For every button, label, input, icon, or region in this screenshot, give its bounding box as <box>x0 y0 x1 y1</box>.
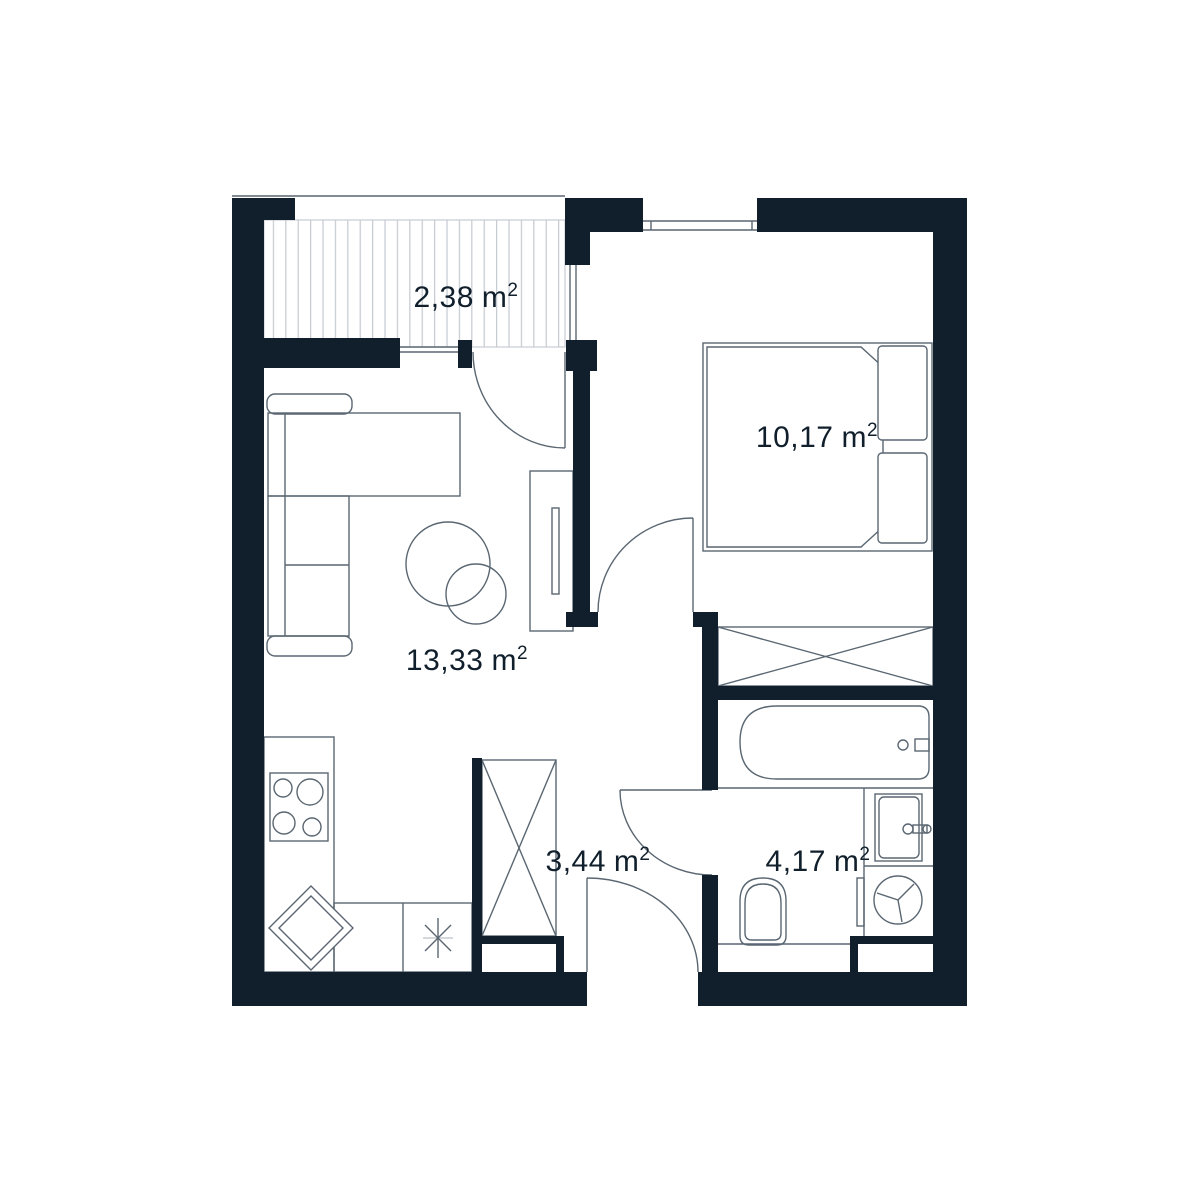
kitchen-sink <box>269 886 353 970</box>
floor-plan-page: 2,38m2 10,17m2 13,33m2 3,44m2 4,17m2 <box>0 0 1200 1200</box>
wall-top <box>565 198 643 232</box>
pillow <box>878 346 927 440</box>
bathtub-tap-icon <box>915 739 929 751</box>
door-arc <box>473 352 565 448</box>
burner <box>303 818 321 836</box>
burner <box>274 779 292 797</box>
entrance-door <box>587 878 698 972</box>
wall-stub <box>566 612 598 627</box>
sink <box>875 794 931 861</box>
washing-machine <box>857 876 922 926</box>
toilet <box>740 878 786 945</box>
pillow <box>878 453 927 543</box>
wall-top <box>757 198 933 232</box>
bathtub <box>740 706 929 779</box>
balcony-area-label: 2,38m2 <box>414 280 519 314</box>
coffee-table <box>446 564 506 624</box>
wall-niche <box>850 936 933 944</box>
hallway-area-label: 3,44m2 <box>546 844 651 878</box>
wall-bathroom-top <box>718 686 933 700</box>
wall-right <box>933 198 967 1006</box>
bathroom-area-label: 4,17m2 <box>766 844 871 878</box>
living-room-area-label: 13,33m2 <box>406 643 528 677</box>
tv-cabinet <box>530 471 573 631</box>
sofa-seat <box>268 413 460 496</box>
balcony-side-window <box>570 265 576 340</box>
wall-bathroom <box>702 627 718 790</box>
wall-kitchen-bar <box>472 758 482 972</box>
sink-faucet-icon <box>903 824 913 834</box>
wall-column <box>565 232 590 265</box>
burner <box>273 812 295 834</box>
bathtub-faucet-icon <box>898 740 908 750</box>
washing-machine-door <box>857 878 864 926</box>
wall-left <box>232 198 264 1006</box>
kitchen <box>264 737 472 972</box>
bedroom-wardrobe <box>718 627 933 686</box>
floor-plan: 2,38m2 10,17m2 13,33m2 3,44m2 4,17m2 <box>0 0 1200 1200</box>
wall-divider <box>573 371 590 612</box>
wall-stub <box>458 340 472 368</box>
bedroom-window <box>643 221 757 230</box>
stove <box>270 773 328 841</box>
wall-niche <box>556 944 564 972</box>
bathroom <box>718 706 933 945</box>
bedroom-area-label: 10,17m2 <box>756 420 878 454</box>
balcony-door <box>473 352 565 448</box>
balcony-window-threshold <box>400 347 458 352</box>
wall-bottom <box>232 972 587 1006</box>
coffee-tables <box>406 522 506 624</box>
sofa-armrest <box>267 636 352 656</box>
sofa-armrest <box>267 394 352 414</box>
wall-pillar-top-left <box>232 198 295 220</box>
wall-niche <box>850 944 858 972</box>
dishwasher-asterisk-icon <box>423 918 453 958</box>
tv <box>552 508 559 594</box>
wall-balcony <box>232 338 400 368</box>
burner <box>297 779 323 805</box>
wall-niche <box>482 936 564 944</box>
door-arc <box>587 878 698 972</box>
wall-stub <box>566 340 597 371</box>
door-arc <box>598 518 693 612</box>
wall-stub <box>693 612 718 627</box>
wall-bottom <box>698 972 967 1006</box>
bedroom-door <box>598 518 693 612</box>
sofa-seat <box>268 496 349 636</box>
wall-bathroom <box>702 875 718 972</box>
